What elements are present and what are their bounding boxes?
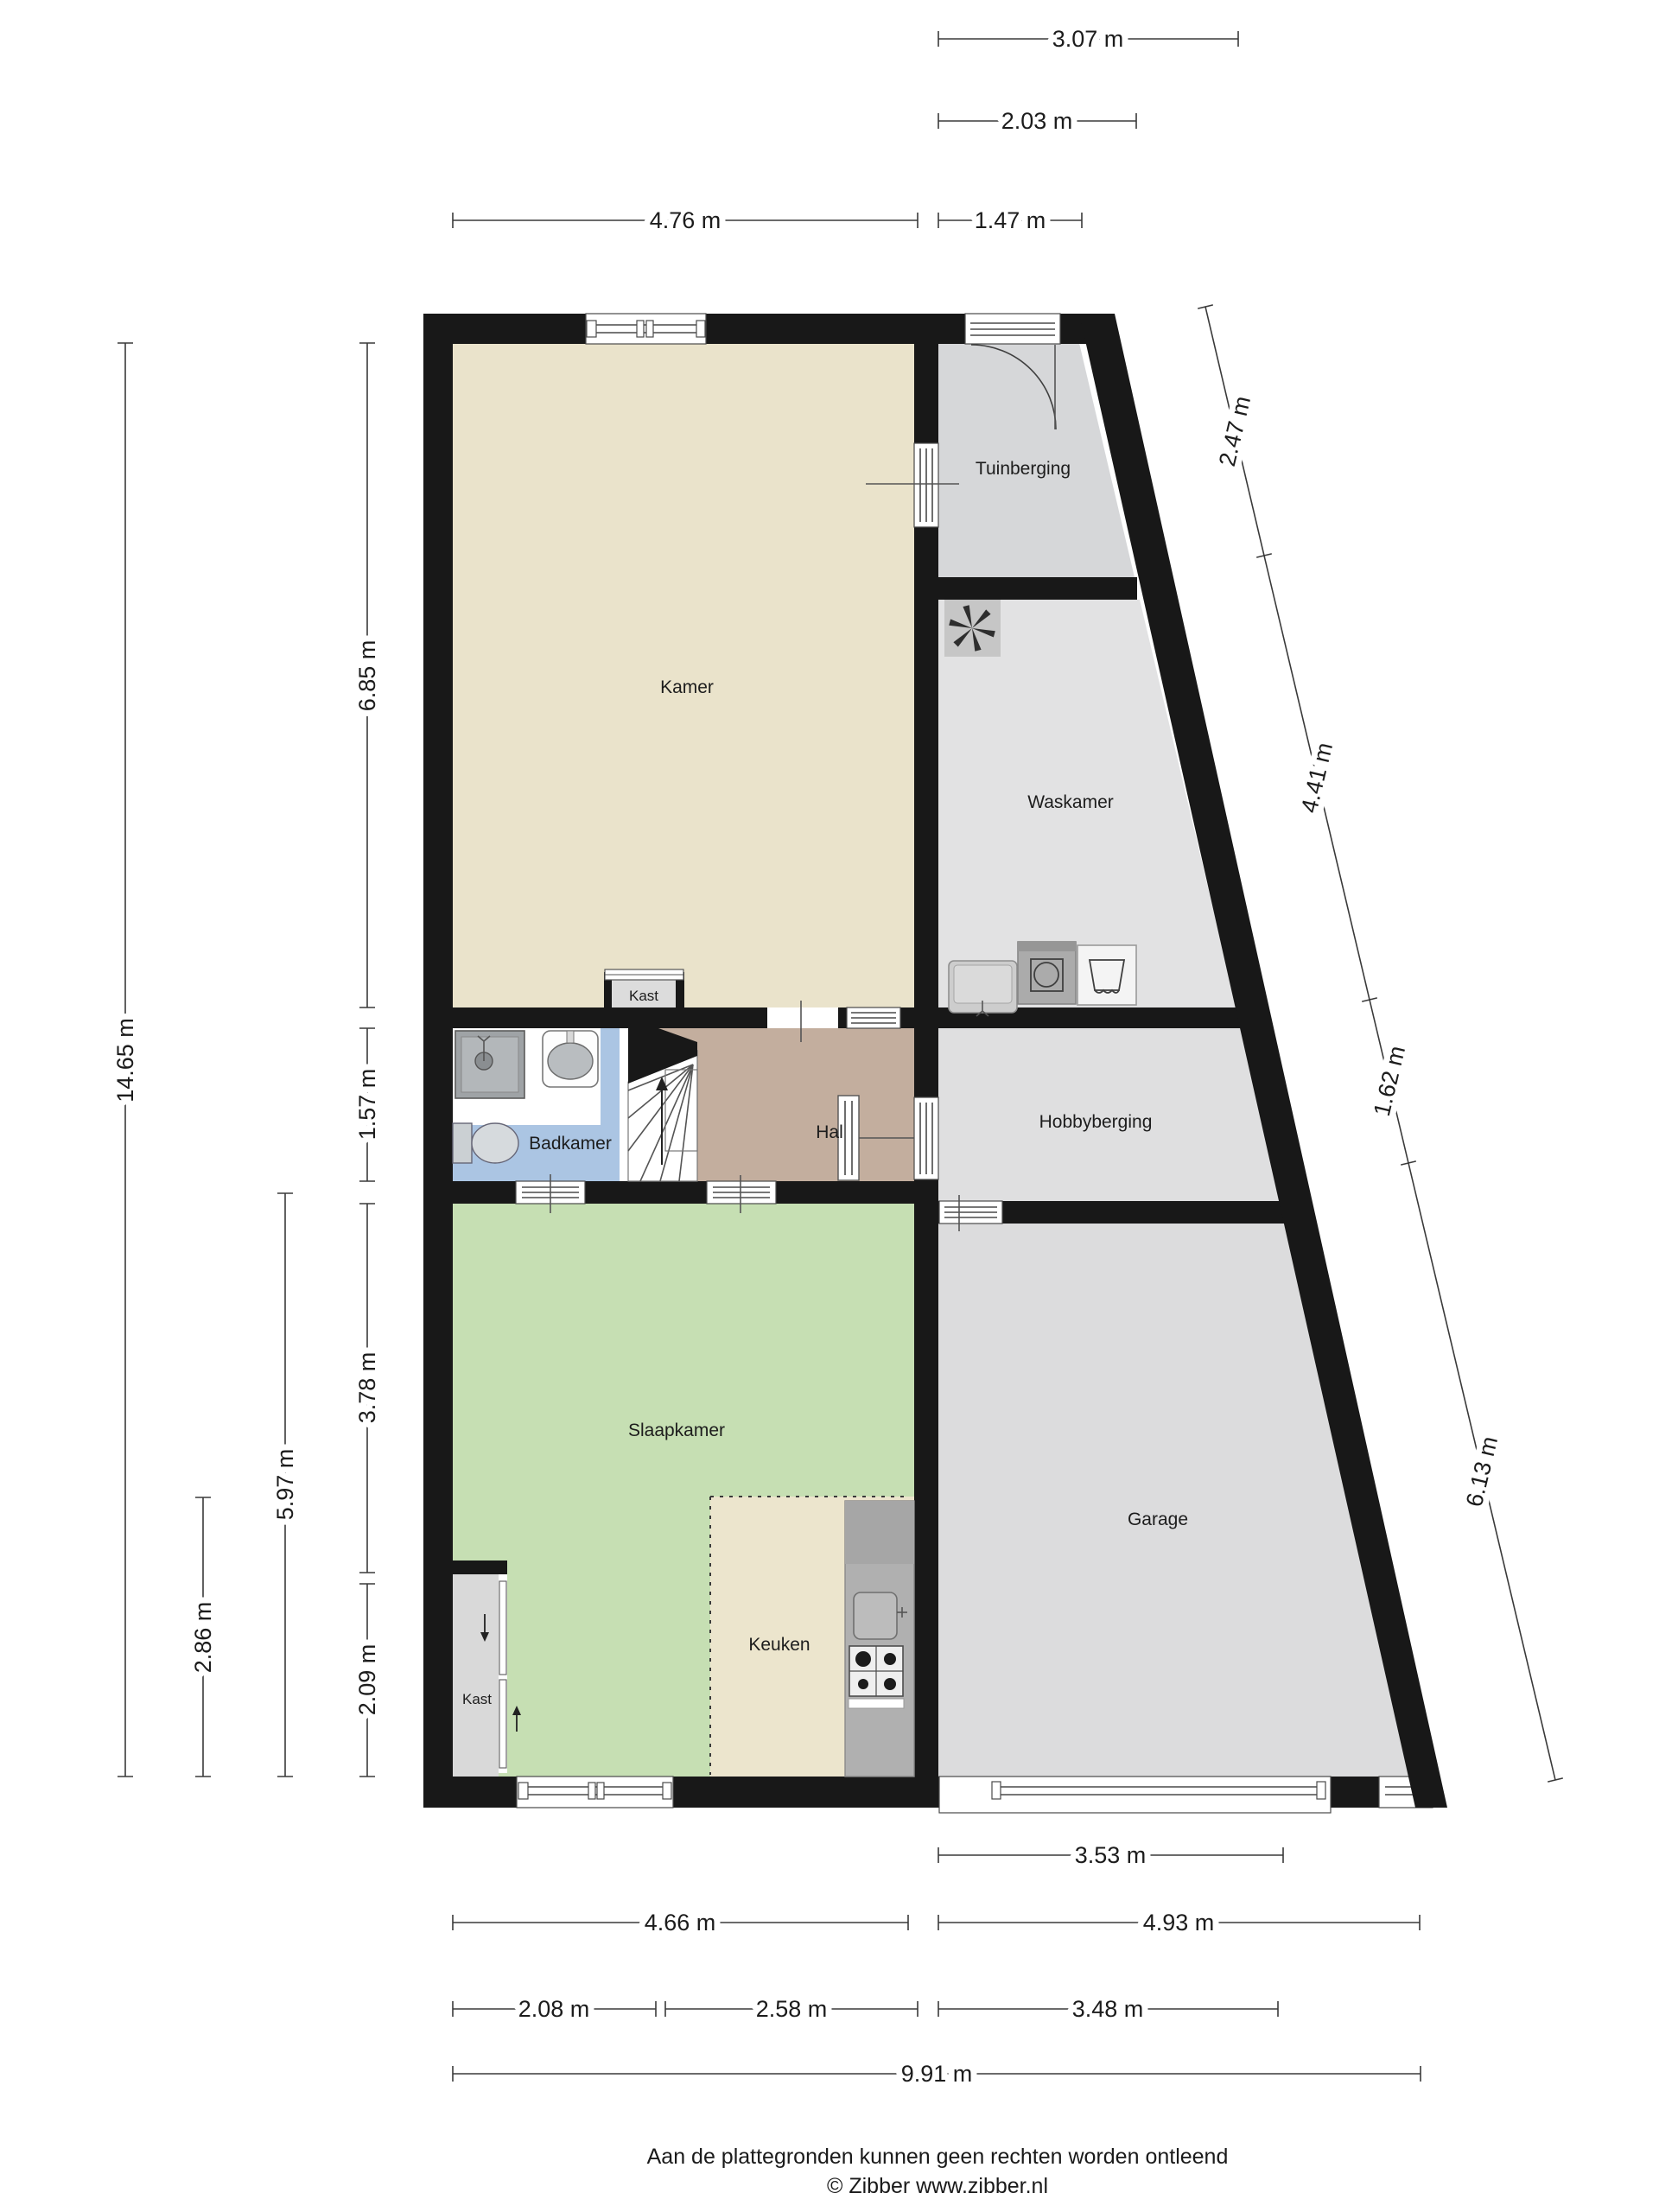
- room-waskamer-label: Waskamer: [1027, 792, 1114, 812]
- floorplan-canvas: Kamer Tuinberging Waskamer Hobbyberging …: [0, 0, 1659, 2212]
- washbasin-icon: [543, 1031, 598, 1087]
- svg-text:1.62 m: 1.62 m: [1369, 1043, 1410, 1118]
- svg-text:3.48 m: 3.48 m: [1072, 1996, 1144, 2022]
- room-tuinberging-label: Tuinberging: [976, 459, 1071, 479]
- svg-text:2.47 m: 2.47 m: [1214, 393, 1255, 468]
- dim-left-3: 3.78 m: [354, 1204, 380, 1573]
- dim-bottom-1: 4.66 m: [453, 1910, 908, 1935]
- footer: Aan de plattegronden kunnen geen rechten…: [647, 2145, 1229, 2198]
- svg-text:6.13 m: 6.13 m: [1461, 1433, 1503, 1509]
- kitchen-counter-upper: [845, 1501, 914, 1564]
- dim-right-0: 2.47 m: [1198, 305, 1272, 557]
- wall-bottom-c: [1331, 1777, 1386, 1808]
- wall-left: [423, 314, 453, 1808]
- window-kamer-top-icon: [586, 314, 706, 344]
- footer-credit: © Zibber www.zibber.nl: [827, 2174, 1048, 2198]
- svg-text:4.66 m: 4.66 m: [645, 1910, 716, 1935]
- wall-divider: [914, 314, 938, 1777]
- svg-text:14.65 m: 14.65 m: [112, 1018, 138, 1103]
- kitchen-fixtures: [845, 1501, 914, 1777]
- kast-boven-door-icon: [605, 969, 683, 980]
- svg-text:4.93 m: 4.93 m: [1143, 1910, 1215, 1935]
- room-kast-boven-label: Kast: [629, 988, 658, 1004]
- dimensions-left: 14.65 m 6.85 m 1.57 m 3.78 m 2.09 m: [112, 343, 380, 1777]
- dim-top-3: 1.47 m: [938, 207, 1082, 233]
- dim-bottom-5: 3.48 m: [938, 1996, 1278, 2022]
- dim-left-1: 6.85 m: [354, 343, 380, 1007]
- stove-icon: [849, 1646, 903, 1696]
- dim-left-0: 14.65 m: [112, 343, 138, 1777]
- svg-text:9.91 m: 9.91 m: [901, 2061, 973, 2087]
- room-kast-onder-label: Kast: [462, 1691, 492, 1707]
- shower-icon: [455, 1031, 524, 1098]
- dim-top-1: 2.03 m: [938, 108, 1136, 134]
- dim-bottom-6: 9.91 m: [453, 2061, 1421, 2087]
- dim-bottom-4: 2.58 m: [665, 1996, 918, 2022]
- dim-left-4: 2.09 m: [354, 1584, 380, 1777]
- counter-edge: [849, 1699, 904, 1708]
- wall-kast-onder-top: [453, 1560, 507, 1574]
- room-hobbyberging-label: Hobbyberging: [1039, 1112, 1153, 1132]
- room-keuken-label: Keuken: [748, 1635, 810, 1655]
- svg-text:3.53 m: 3.53 m: [1075, 1842, 1147, 1868]
- svg-text:3.07 m: 3.07 m: [1052, 26, 1124, 52]
- dim-right-3: 6.13 m: [1408, 1163, 1563, 1782]
- dryer-basket-icon: [1077, 945, 1136, 1005]
- dimensions-bottom: 3.53 m 4.66 m 4.93 m 2.08 m 2.58 m: [453, 1842, 1421, 2087]
- svg-text:3.78 m: 3.78 m: [354, 1352, 380, 1424]
- room-garage-label: Garage: [1128, 1510, 1188, 1529]
- dimensions-top: 3.07 m 2.03 m 4.76 m 1.47 m: [453, 26, 1238, 233]
- garage-door-icon: [939, 1777, 1331, 1813]
- window-slaapkamer-icon: [517, 1777, 673, 1808]
- svg-text:2.58 m: 2.58 m: [756, 1996, 828, 2022]
- dim-left-6: 2.86 m: [190, 1497, 216, 1777]
- washing-machine-icon: [1018, 942, 1076, 1004]
- window-kamer-hal-icon: [847, 1007, 900, 1028]
- svg-text:1.57 m: 1.57 m: [354, 1069, 380, 1141]
- ventilation-fan-icon: [944, 600, 1001, 657]
- svg-text:4.41 m: 4.41 m: [1296, 740, 1338, 815]
- dim-top-0: 3.07 m: [938, 26, 1238, 52]
- dim-left-5: 5.97 m: [272, 1193, 298, 1777]
- utility-sink-icon: [949, 961, 1017, 1016]
- svg-text:6.85 m: 6.85 m: [354, 640, 380, 712]
- dim-top-2: 4.76 m: [453, 207, 918, 233]
- dim-bottom-2: 4.93 m: [938, 1910, 1420, 1935]
- room-kast-onder-floor: [453, 1574, 499, 1777]
- dim-right-2: 1.62 m: [1369, 1000, 1416, 1165]
- wall-bottom-a: [423, 1777, 517, 1808]
- wall-bottom-b: [673, 1777, 939, 1808]
- toilet-icon: [453, 1123, 518, 1163]
- svg-text:2.03 m: 2.03 m: [1001, 108, 1073, 134]
- svg-text:4.76 m: 4.76 m: [650, 207, 721, 233]
- dim-bottom-3: 2.08 m: [453, 1996, 656, 2022]
- svg-text:2.08 m: 2.08 m: [518, 1996, 590, 2022]
- room-hal-label: Hal: [816, 1122, 843, 1142]
- room-kamer-label: Kamer: [660, 677, 714, 697]
- room-kamer-floor: [453, 343, 914, 1007]
- stairs-icon: [628, 1028, 697, 1181]
- dim-bottom-0: 3.53 m: [938, 1842, 1283, 1868]
- room-badkamer-label: Badkamer: [529, 1134, 612, 1154]
- room-garage-floor: [938, 1224, 1418, 1777]
- svg-text:5.97 m: 5.97 m: [272, 1449, 298, 1521]
- wall-tuinberging-waskamer: [938, 577, 1137, 600]
- footer-disclaimer: Aan de plattegronden kunnen geen rechten…: [647, 2145, 1229, 2169]
- svg-text:1.47 m: 1.47 m: [975, 207, 1046, 233]
- dim-right-1: 4.41 m: [1264, 556, 1377, 1001]
- room-slaapkamer-label: Slaapkamer: [628, 1421, 725, 1440]
- svg-text:2.86 m: 2.86 m: [190, 1602, 216, 1674]
- dim-left-2: 1.57 m: [354, 1028, 380, 1181]
- svg-text:2.09 m: 2.09 m: [354, 1644, 380, 1716]
